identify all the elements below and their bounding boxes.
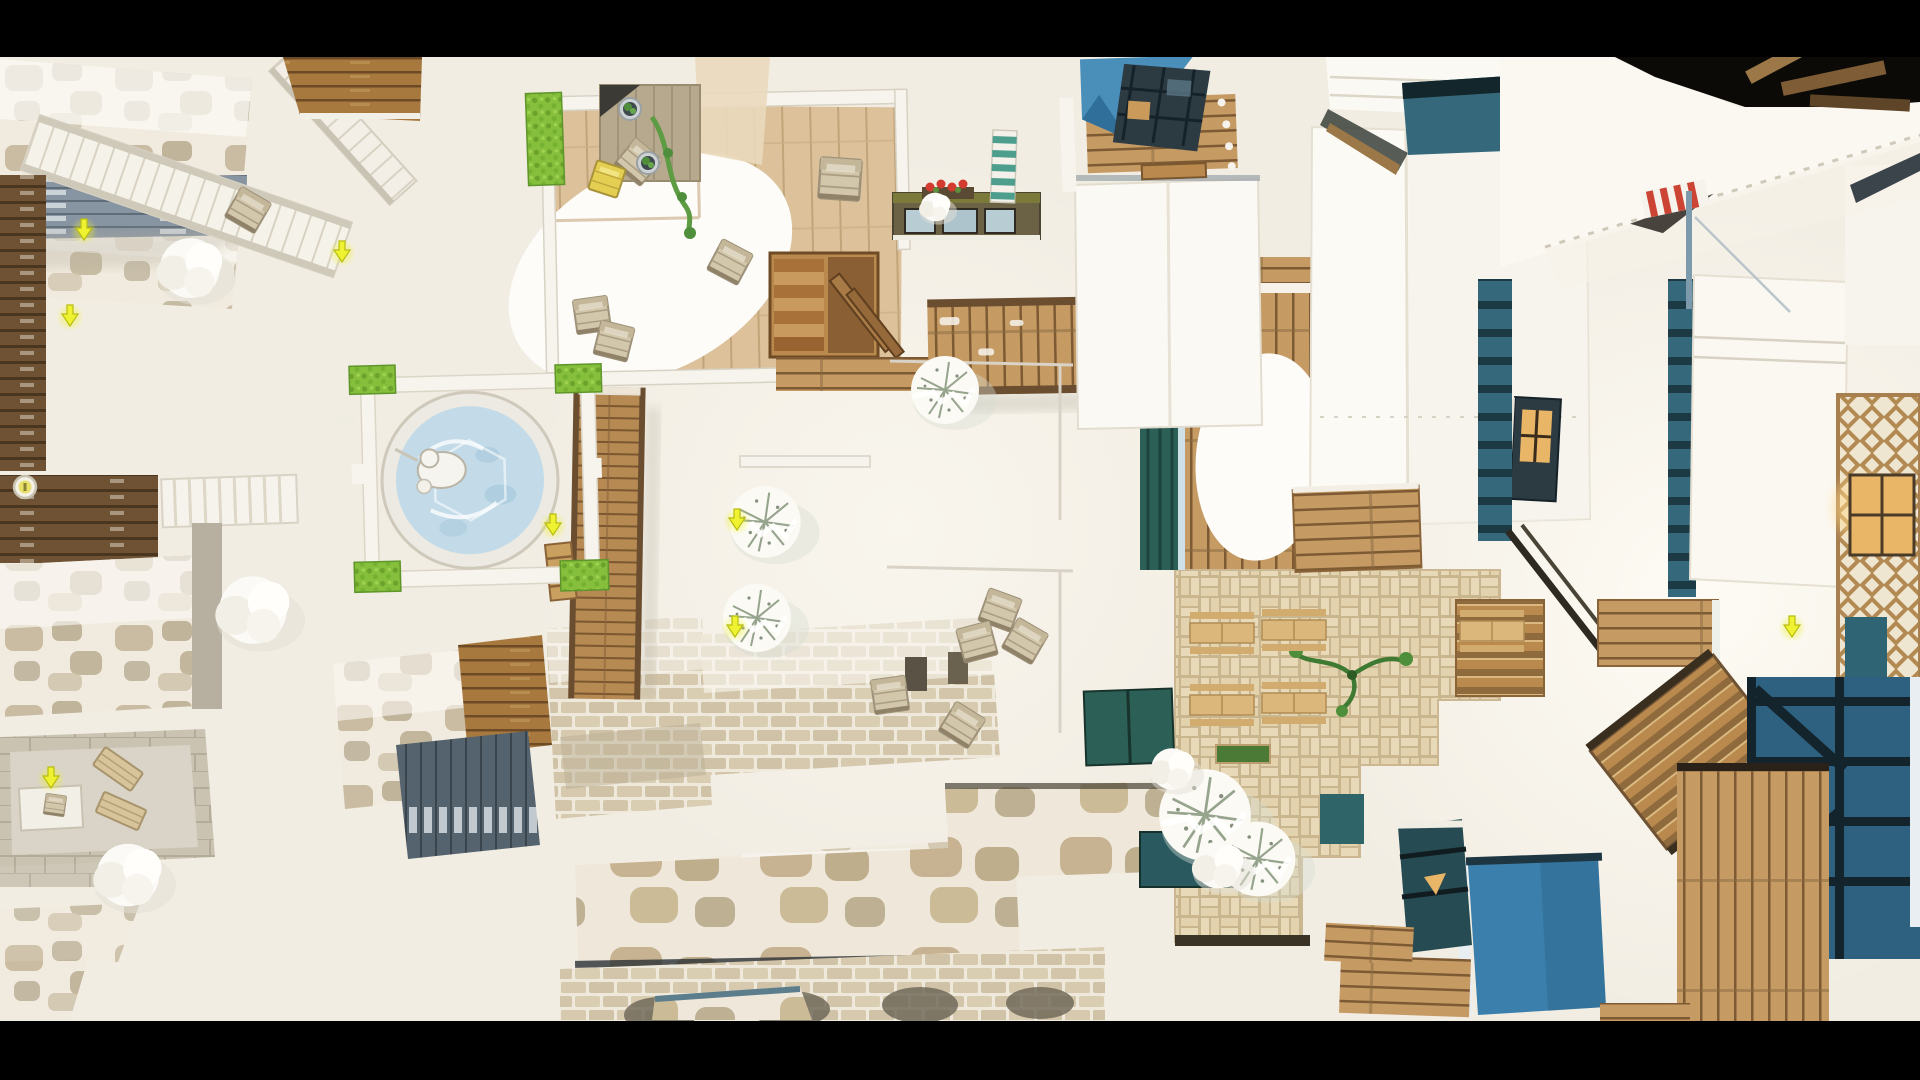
- roof-snow-edge: [300, 113, 420, 119]
- deck-piece-2: [1324, 923, 1414, 966]
- striped-awning-teal: [990, 130, 1016, 203]
- shop-window: [985, 209, 1015, 233]
- planter-box: [1216, 745, 1270, 763]
- fountain: [380, 390, 561, 571]
- crate: [871, 676, 909, 714]
- crate: [593, 320, 634, 361]
- stone-band: [0, 903, 140, 962]
- blue-pole: [1686, 191, 1692, 309]
- picnic-table: [1262, 609, 1326, 651]
- picnic-table: [1262, 682, 1326, 724]
- potted-plant: [637, 152, 659, 174]
- patio-edge-beam: [1175, 935, 1310, 946]
- cabin-step: [1142, 163, 1206, 179]
- crate: [818, 157, 862, 201]
- low-white-ledge: [740, 456, 870, 467]
- snowy-roof-3: [1690, 275, 1848, 587]
- plaza-post: [352, 464, 367, 484]
- item-badge-icon[interactable]: [14, 476, 36, 498]
- wall-stub: [336, 415, 354, 425]
- game-world-viewport[interactable]: [0, 57, 1920, 1021]
- game-screenshot: [0, 0, 1920, 1080]
- teal-block: [1845, 617, 1887, 687]
- plank-wall: [1677, 769, 1829, 1021]
- crate: [43, 793, 66, 816]
- white-fence: [161, 475, 298, 528]
- stair-steps: [774, 259, 824, 351]
- white-corner-post: [1910, 677, 1920, 927]
- plank-wall-edge: [1677, 763, 1829, 771]
- crate: [956, 621, 998, 663]
- hedge-strip: [525, 92, 564, 185]
- teal-slab-small: [1320, 794, 1364, 844]
- warm-pane: [1127, 101, 1150, 120]
- deck-piece-3: [1600, 1003, 1690, 1021]
- bright-blue-roof: [1455, 853, 1606, 1016]
- letterbox-bottom: [0, 1021, 1920, 1080]
- castle-slate-roof: [396, 731, 540, 859]
- wood-roof: [283, 57, 422, 121]
- picnic-table: [1460, 610, 1524, 652]
- sand-path: [695, 57, 770, 165]
- potted-plant: [619, 98, 641, 120]
- picnic-table: [1190, 684, 1254, 726]
- window-slot: [905, 657, 927, 691]
- teal-beam-wall: [1478, 279, 1512, 541]
- dark-plank-wall: [0, 175, 46, 471]
- glass-skylight: [1110, 61, 1213, 154]
- plaza-post: [587, 458, 602, 478]
- letterbox-top: [0, 0, 1920, 57]
- wood-slat-ramp: [1293, 483, 1422, 572]
- village-scene: [0, 57, 1920, 1021]
- snow-band: [0, 555, 208, 629]
- picnic-table: [1190, 612, 1254, 654]
